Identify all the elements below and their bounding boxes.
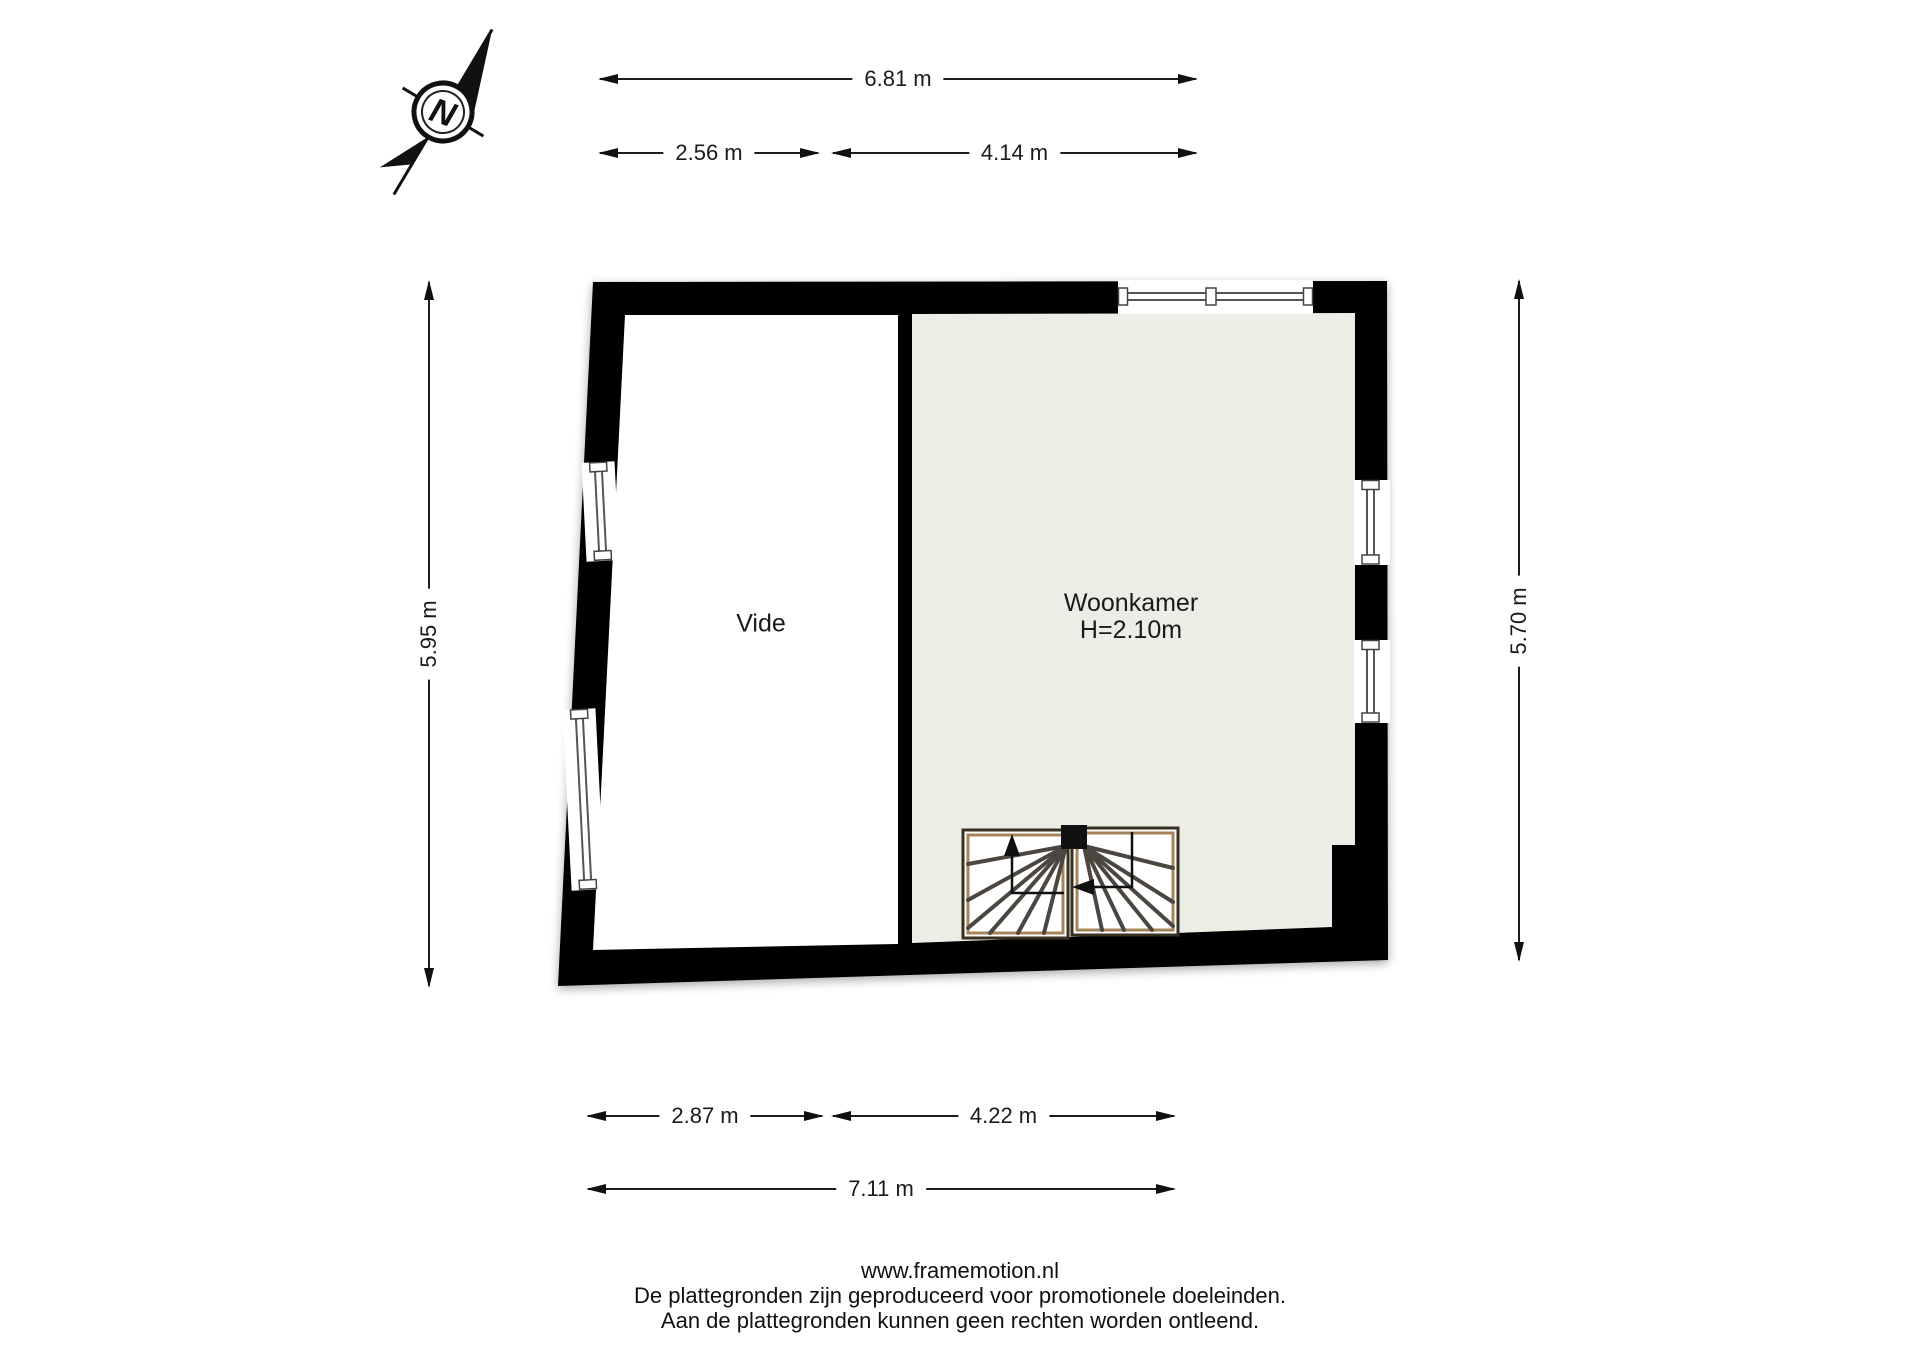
- dim-top-right: 4.14 m: [833, 152, 1196, 154]
- staircase: [963, 825, 1178, 938]
- dim-label: 5.95 m: [417, 588, 441, 679]
- arrow-left-icon: [831, 1111, 851, 1121]
- dim-label: 4.22 m: [958, 1104, 1049, 1128]
- arrow-right-icon: [800, 148, 820, 158]
- footer-disclaimer-1: De plattegronden zijn geproduceerd voor …: [0, 1283, 1920, 1308]
- dim-top-total: 6.81 m: [600, 78, 1196, 80]
- arrow-left-icon: [831, 148, 851, 158]
- window-right-upper: [1354, 480, 1390, 565]
- dim-label: 5.70 m: [1507, 575, 1531, 666]
- footer-website: www.framemotion.nl: [0, 1258, 1920, 1283]
- window-right-lower: [1354, 640, 1390, 723]
- window-left-upper: [582, 461, 620, 562]
- footer: www.framemotion.nl De plattegronden zijn…: [0, 1258, 1920, 1333]
- arrow-right-icon: [1178, 148, 1198, 158]
- arrow-left-icon: [586, 1111, 606, 1121]
- dim-label: 7.11 m: [836, 1177, 926, 1201]
- dim-label: 4.14 m: [969, 141, 1060, 165]
- room-label-woonkamer: Woonkamer H=2.10m: [1064, 590, 1198, 644]
- dim-bottom-total: 7.11 m: [588, 1188, 1174, 1190]
- stair-newel-post: [1061, 825, 1087, 849]
- arrow-right-icon: [1156, 1111, 1176, 1121]
- dim-label: 6.81 m: [852, 67, 943, 91]
- window-top: [1118, 280, 1313, 314]
- room-label-vide: Vide: [736, 611, 786, 638]
- arrow-down-icon: [1514, 942, 1524, 962]
- arrow-right-icon: [1156, 1184, 1176, 1194]
- arrow-right-icon: [1178, 74, 1198, 84]
- north-arrow-icon: N: [353, 5, 532, 218]
- dim-label: 2.87 m: [659, 1104, 750, 1128]
- dim-left-side: 5.95 m: [428, 282, 430, 986]
- arrow-up-icon: [1514, 279, 1524, 299]
- arrow-right-icon: [804, 1111, 824, 1121]
- arrow-down-icon: [424, 968, 434, 988]
- arrow-left-icon: [598, 74, 618, 84]
- footer-disclaimer-2: Aan de plattegronden kunnen geen rechten…: [0, 1308, 1920, 1333]
- arrow-left-icon: [586, 1184, 606, 1194]
- dim-bottom-left: 2.87 m: [588, 1115, 822, 1117]
- floorplan-drawing: N: [0, 0, 1920, 1358]
- floorplan-page: N 6.81 m 2.56 m 4.14 m 5.95 m 5.70 m 2.8…: [0, 0, 1920, 1358]
- dim-top-left: 2.56 m: [600, 152, 818, 154]
- room-ceiling-height: H=2.10m: [1064, 617, 1198, 644]
- arrow-up-icon: [424, 280, 434, 300]
- arrow-left-icon: [598, 148, 618, 158]
- room-name: Woonkamer: [1064, 590, 1198, 617]
- dim-right-side: 5.70 m: [1518, 281, 1520, 960]
- dim-label: 2.56 m: [663, 141, 754, 165]
- dim-bottom-right: 4.22 m: [833, 1115, 1174, 1117]
